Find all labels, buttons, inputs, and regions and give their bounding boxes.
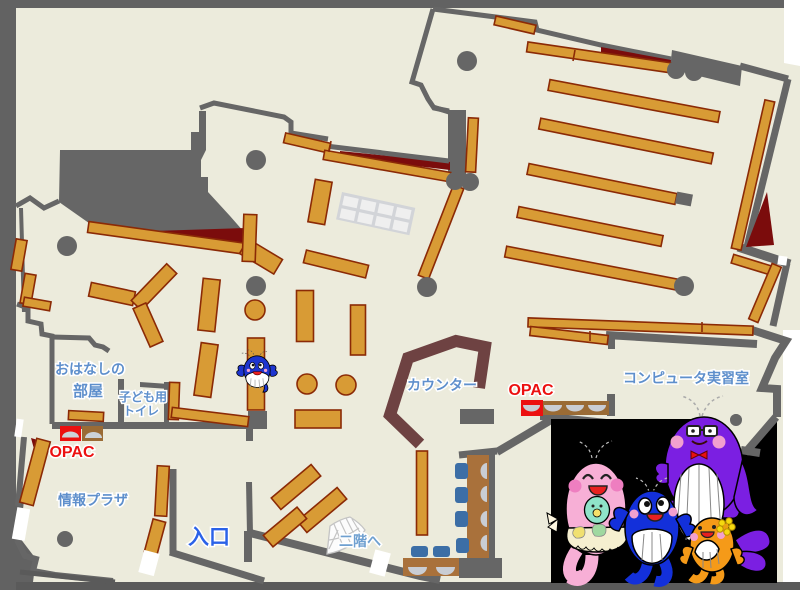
svg-text:部屋: 部屋 xyxy=(73,382,103,400)
svg-text:OPAC: OPAC xyxy=(49,444,94,461)
svg-text:子ども用: 子ども用 xyxy=(119,390,167,404)
svg-text:二階へ: 二階へ xyxy=(339,533,381,549)
svg-text:OPAC: OPAC xyxy=(508,382,553,399)
svg-text:入口: 入口 xyxy=(188,526,230,549)
svg-text:おはなしの: おはなしの xyxy=(55,361,125,377)
svg-text:情報プラザ: 情報プラザ xyxy=(58,492,128,508)
svg-text:カウンター: カウンター xyxy=(407,377,477,393)
svg-text:トイレ: トイレ xyxy=(123,404,159,418)
svg-text:コンピュータ実習室: コンピュータ実習室 xyxy=(623,370,749,386)
